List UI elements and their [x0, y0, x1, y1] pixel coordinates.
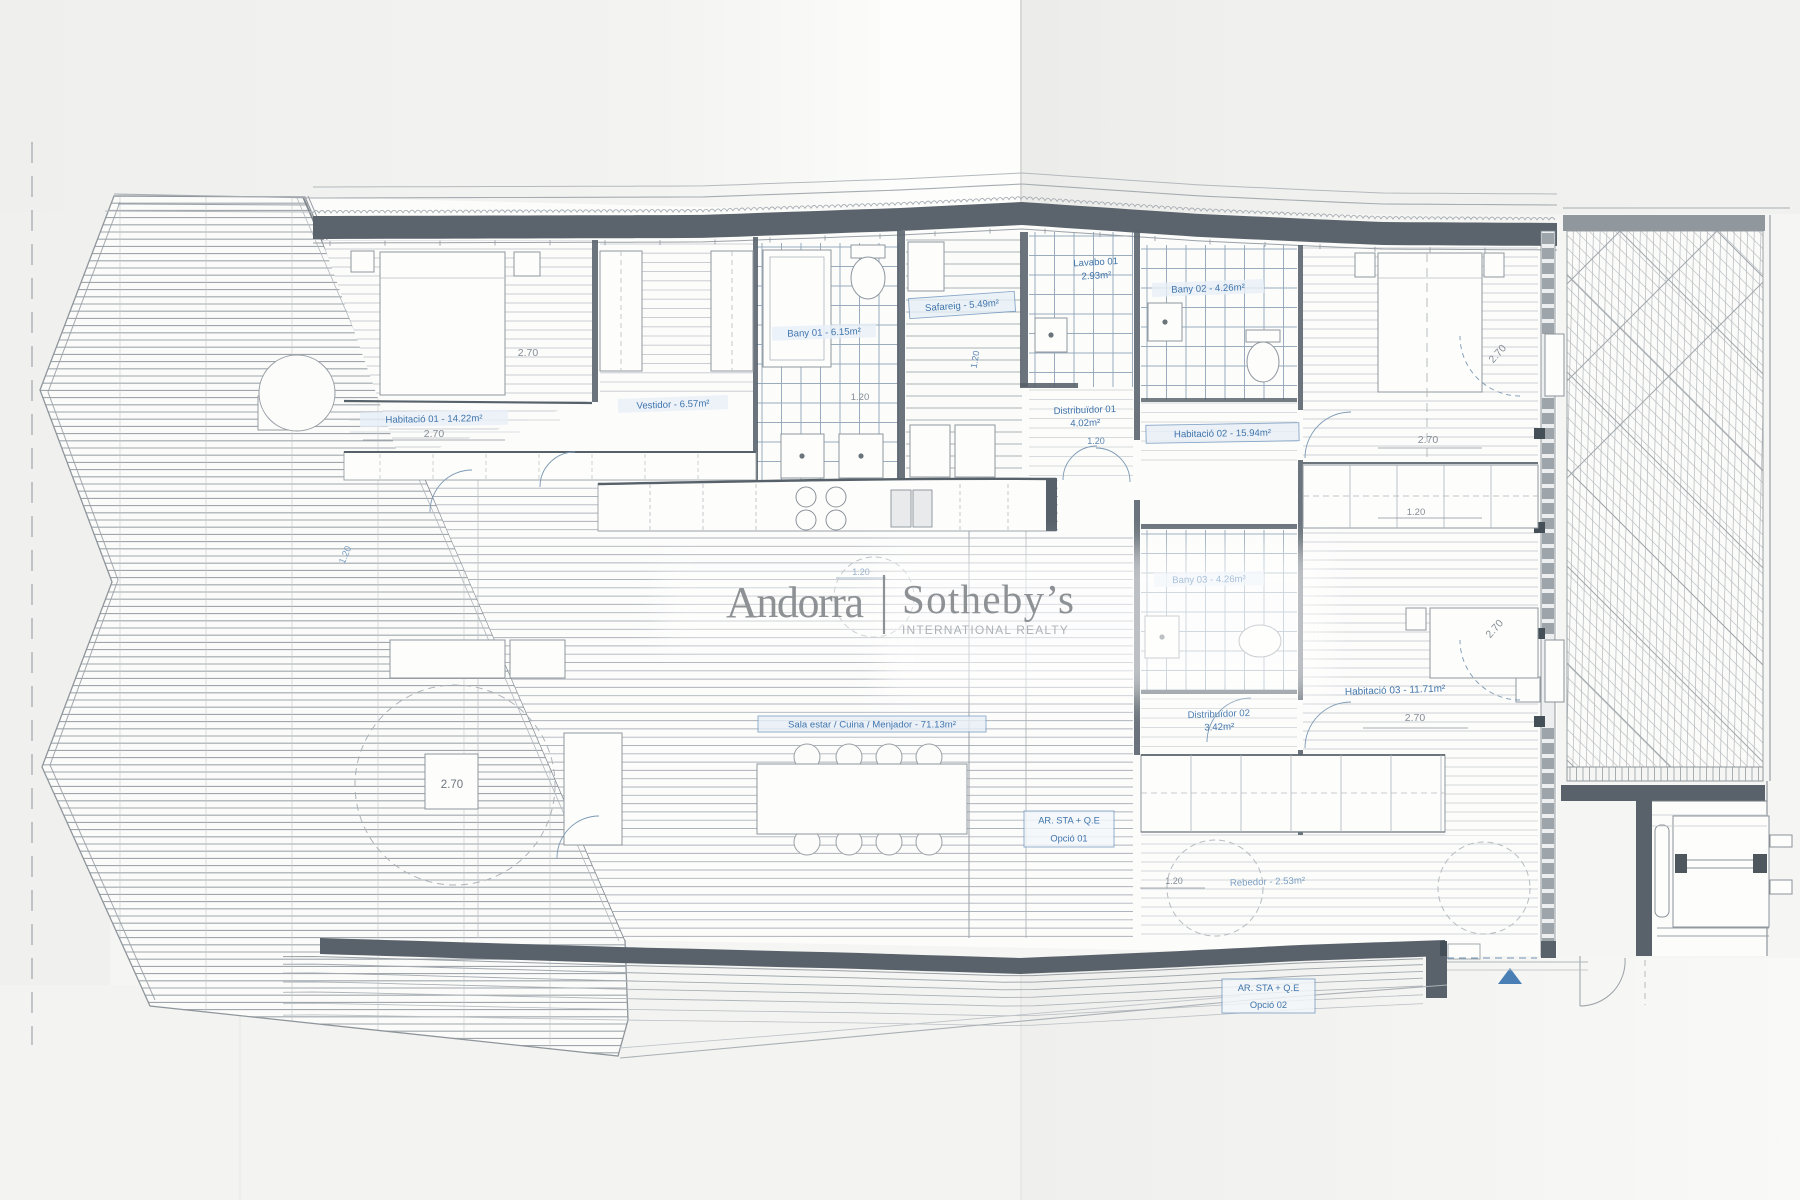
svg-text:AR. STA + Q.E: AR. STA + Q.E [1238, 983, 1300, 993]
svg-text:Opció 01: Opció 01 [1050, 833, 1087, 843]
svg-text:1.20: 1.20 [1087, 436, 1105, 446]
svg-text:2.93m²: 2.93m² [1081, 270, 1112, 283]
svg-text:Distribuïdor 01: Distribuïdor 01 [1053, 404, 1116, 417]
svg-text:Opció 02: Opció 02 [1250, 1000, 1287, 1010]
svg-text:2.70: 2.70 [424, 428, 445, 440]
svg-text:2.70: 2.70 [441, 779, 463, 791]
svg-text:Habitació 01 - 14.22m²: Habitació 01 - 14.22m² [385, 413, 483, 426]
svg-text:Sotheby’s: Sotheby’s [902, 576, 1074, 622]
svg-text:2.70: 2.70 [1418, 434, 1439, 446]
svg-text:INTERNATIONAL REALTY: INTERNATIONAL REALTY [902, 623, 1070, 637]
svg-text:Andorra: Andorra [726, 578, 864, 627]
svg-text:AR. STA + Q.E: AR. STA + Q.E [1038, 815, 1100, 825]
svg-text:3.42m²: 3.42m² [1204, 721, 1235, 733]
svg-text:Lavabo 01: Lavabo 01 [1073, 256, 1118, 269]
svg-text:Distribuïdor 02: Distribuïdor 02 [1187, 708, 1250, 721]
svg-text:4.02m²: 4.02m² [1070, 417, 1101, 429]
svg-text:Sala estar / Cuina / Menjador: Sala estar / Cuina / Menjador - 71.13m² [788, 720, 957, 731]
svg-text:2.70: 2.70 [518, 347, 539, 359]
svg-text:1.20: 1.20 [1407, 507, 1426, 518]
svg-text:1.20: 1.20 [851, 392, 870, 403]
svg-text:2.70: 2.70 [1405, 712, 1426, 724]
svg-text:1.20: 1.20 [1165, 876, 1183, 886]
svg-text:Habitació 02 - 15.94m²: Habitació 02 - 15.94m² [1174, 428, 1272, 441]
